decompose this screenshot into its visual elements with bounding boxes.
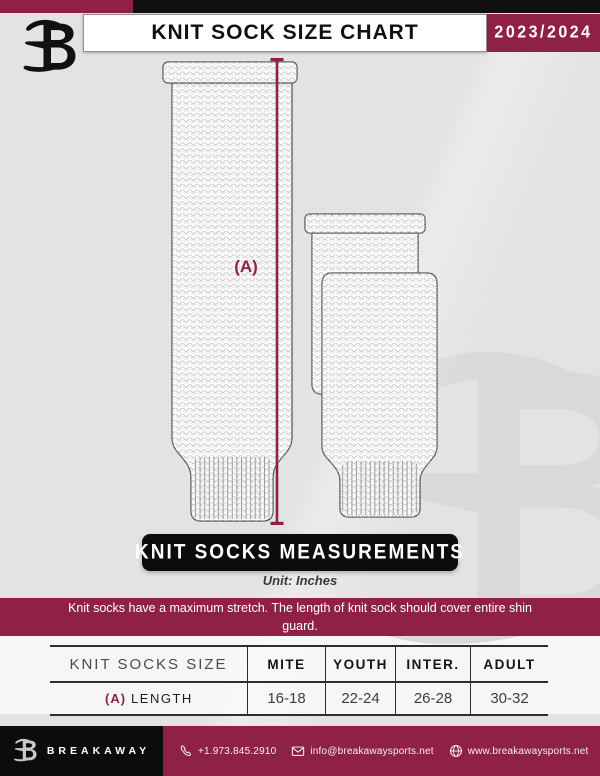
unit-label: Unit: Inches (0, 573, 600, 588)
envelope-icon (291, 744, 305, 758)
measurements-banner: KNIT SOCKS MEASUREMENTS (142, 534, 458, 571)
footer: BREAKAWAY +1.973.845.2910 info@breakaway… (0, 726, 600, 776)
value-inter: 26-28 (414, 690, 452, 707)
size-chart-page: KNIT SOCK SIZE CHART 2023/2024 (0, 0, 600, 776)
header-cell-size: KNIT SOCKS SIZE (50, 647, 247, 681)
header-cell-youth: YOUTH (325, 647, 395, 681)
season-badge: 2023/2024 (487, 14, 600, 52)
footer-contacts: +1.973.845.2910 info@breakawaysports.net… (163, 726, 600, 776)
value-youth: 22-24 (341, 690, 379, 707)
value-cell-youth: 22-24 (325, 683, 395, 714)
header-label-size: KNIT SOCKS SIZE (69, 656, 227, 673)
row-label: LENGTH (131, 691, 193, 706)
value-mite: 16-18 (267, 690, 305, 707)
globe-icon (449, 744, 463, 758)
footer-brand-name: BREAKAWAY (47, 745, 150, 757)
size-table-header-row: KNIT SOCKS SIZE MITE YOUTH INTER. ADULT (50, 647, 548, 683)
header-label-inter: INTER. (406, 657, 459, 672)
sock-small (322, 273, 437, 517)
footer-website-url: www.breakawaysports.net (468, 746, 589, 757)
footer-logo-icon (13, 737, 39, 765)
footer-email: info@breakawaysports.net (291, 744, 433, 758)
value-cell-adult: 30-32 (470, 683, 548, 714)
value-cell-inter: 26-28 (395, 683, 470, 714)
value-adult: 30-32 (490, 690, 528, 707)
measurements-banner-label: KNIT SOCKS MEASUREMENTS (135, 540, 465, 565)
footer-brand-block: BREAKAWAY (0, 726, 163, 776)
top-strip-black (133, 0, 600, 13)
footer-email-address: info@breakawaysports.net (310, 746, 433, 757)
top-strip-maroon (0, 0, 133, 13)
size-table: KNIT SOCKS SIZE MITE YOUTH INTER. ADULT … (50, 645, 548, 716)
header-label-youth: YOUTH (333, 657, 388, 672)
footer-phone-number: +1.973.845.2910 (198, 746, 276, 757)
table-row-length: (A) LENGTH 16-18 22-24 26-28 30-32 (50, 683, 548, 716)
dimension-a-label: (A) (234, 257, 258, 276)
title-bar: KNIT SOCK SIZE CHART (83, 14, 487, 52)
page-title: KNIT SOCK SIZE CHART (151, 21, 418, 45)
row-dimension: (A) (105, 691, 126, 706)
breakaway-logo-icon (20, 16, 82, 80)
header-cell-mite: MITE (247, 647, 325, 681)
season-label: 2023/2024 (494, 23, 592, 43)
footer-phone: +1.973.845.2910 (179, 744, 276, 758)
footer-website: www.breakawaysports.net (449, 744, 589, 758)
stretch-note-text: Knit socks have a maximum stretch. The l… (60, 599, 540, 635)
stretch-note-banner: Knit socks have a maximum stretch. The l… (0, 598, 600, 636)
header-label-adult: ADULT (483, 657, 535, 672)
phone-icon (179, 744, 193, 758)
row-label-cell: (A) LENGTH (50, 683, 247, 714)
header-cell-adult: ADULT (470, 647, 548, 681)
header-label-mite: MITE (267, 657, 305, 672)
value-cell-mite: 16-18 (247, 683, 325, 714)
header-cell-inter: INTER. (395, 647, 470, 681)
sock-illustration: (A) (0, 0, 600, 530)
